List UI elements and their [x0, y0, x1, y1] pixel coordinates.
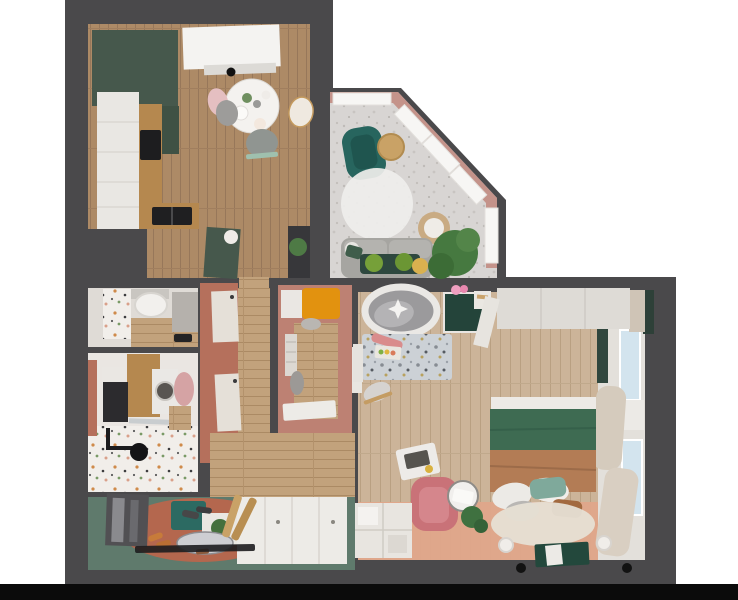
study-orange-desk — [302, 288, 340, 319]
mirror-reflection — [111, 498, 125, 542]
wall-sconce-dot — [622, 563, 632, 573]
wardrobe-door-handle — [230, 295, 234, 299]
hall-floor-lower — [210, 433, 355, 497]
table-plant — [242, 93, 252, 103]
moss-ball-plant — [395, 253, 413, 271]
mirror-reflection — [129, 500, 138, 542]
curtain-beige — [629, 290, 645, 332]
wardrobe-door — [211, 291, 239, 343]
console-plant — [289, 238, 307, 256]
living-window-right — [485, 208, 498, 263]
kitchen-white-cabinet-column — [97, 92, 139, 229]
cube-shelf-box — [388, 535, 407, 553]
cube-shelf-box — [358, 507, 378, 525]
letterbox-bar — [0, 584, 738, 600]
study-radiator — [285, 334, 297, 376]
bath-dark-mirror — [103, 382, 128, 422]
wall-sconce-dot — [516, 563, 526, 573]
study-white-desk — [281, 290, 302, 318]
pink-toy — [451, 285, 461, 295]
bed-pillow-teal — [529, 476, 567, 500]
curtain-beige — [591, 385, 627, 471]
wall-shelf-strip — [353, 344, 363, 382]
living-round-rug — [341, 168, 413, 240]
study-pouf — [290, 371, 304, 395]
bathroom-pink-wall — [88, 360, 97, 436]
curtain-green — [597, 325, 608, 383]
floor-plan-canvas — [0, 0, 738, 600]
kitchen-window — [182, 24, 280, 69]
coffee-cup — [425, 465, 433, 473]
bath-wood-patch — [169, 406, 191, 430]
bedroom-wardrobe — [497, 288, 630, 329]
moss-ball-plant — [365, 254, 383, 272]
kitchen-cooktop — [140, 130, 161, 160]
pendant-lamp — [227, 68, 236, 77]
table-plate — [254, 118, 266, 130]
bedside-lamp — [597, 536, 611, 550]
mustard-pillow — [412, 258, 428, 274]
wc-terrazzo-floor — [103, 289, 131, 339]
pink-toy — [460, 285, 468, 293]
toy-dot — [385, 350, 390, 355]
table-plate — [262, 91, 271, 100]
side-table-wood — [378, 134, 404, 160]
living-window-top — [333, 93, 391, 105]
big-plant-leaf — [456, 228, 480, 252]
bath-pink-rug — [174, 372, 194, 406]
wardrobe-door-handle — [233, 379, 237, 383]
pink-armchair-cushion — [419, 487, 449, 523]
study-gray-chair — [301, 318, 321, 330]
kitchen-stool — [224, 230, 238, 244]
big-plant-leaf — [428, 253, 454, 279]
storage-bed-handle — [276, 520, 280, 524]
storage-bed-handle — [331, 520, 335, 524]
floor-plan-image — [0, 0, 738, 600]
table-vase — [253, 100, 261, 108]
kitchen-green-counter-strip — [160, 106, 179, 154]
toilet-bowl — [135, 293, 167, 317]
washing-machine-door — [156, 382, 174, 400]
wardrobe-door — [215, 373, 242, 431]
wc-counter-mat — [172, 292, 198, 332]
mat-towel — [545, 544, 563, 566]
toy-dot — [379, 350, 384, 355]
bedroom-plant-leaf — [474, 519, 488, 533]
hall-kitchen-opening — [239, 277, 269, 289]
bedroom-window-pane — [620, 330, 640, 400]
bedside-lamp — [499, 538, 513, 552]
toy-dot — [391, 351, 396, 356]
wc-black-fixture — [174, 334, 192, 342]
bed-green-blanket — [490, 409, 596, 454]
shower-head — [130, 443, 148, 461]
